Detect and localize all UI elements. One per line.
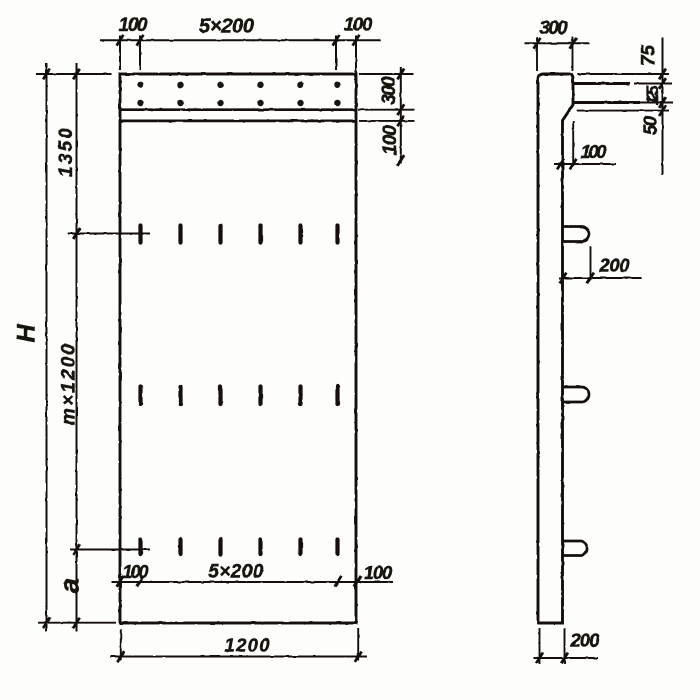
- svg-text:100: 100: [119, 15, 148, 36]
- svg-text:125: 125: [643, 85, 662, 105]
- svg-text:5×200: 5×200: [208, 562, 263, 583]
- svg-text:100: 100: [344, 14, 373, 35]
- svg-text:300: 300: [539, 18, 568, 39]
- svg-text:a: a: [55, 578, 85, 593]
- svg-text:300: 300: [379, 76, 400, 105]
- svg-text:5×200: 5×200: [199, 16, 254, 38]
- svg-text:75: 75: [639, 45, 660, 66]
- svg-text:200: 200: [570, 630, 601, 651]
- svg-text:100: 100: [364, 562, 393, 583]
- svg-text:100: 100: [380, 125, 401, 155]
- svg-text:100: 100: [581, 141, 608, 162]
- svg-text:100: 100: [123, 562, 149, 582]
- svg-text:1200: 1200: [225, 635, 271, 656]
- svg-text:50: 50: [640, 115, 661, 135]
- svg-text:1350: 1350: [56, 128, 77, 177]
- svg-text:H: H: [13, 324, 41, 343]
- svg-text:200: 200: [599, 255, 631, 276]
